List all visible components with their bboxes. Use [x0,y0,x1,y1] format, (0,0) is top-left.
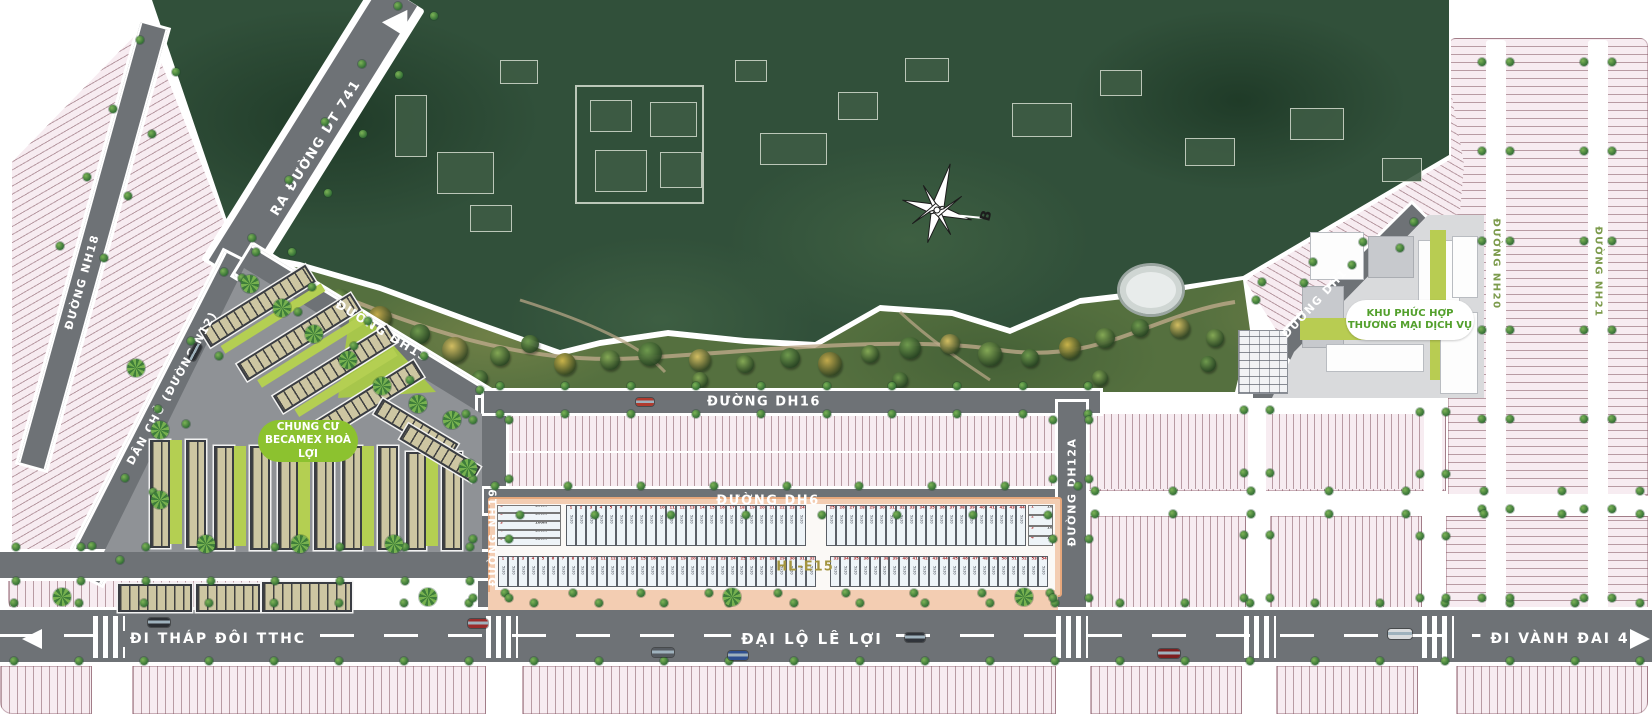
tree-icon [1608,58,1616,66]
lot-dims: 5x20 [579,515,582,524]
lot: 345x20 [840,556,850,587]
lot: 155x20 [706,505,716,546]
lot-strip-bottom-6 [1456,666,1648,714]
lot: 205x20 [687,556,697,587]
tree-icon [505,535,513,543]
lawn-strip [234,446,246,546]
lot-number: 2 [579,506,582,510]
lawn-strip [362,446,374,546]
park-tree-icon [861,345,879,363]
lot: 135x20 [686,505,696,546]
palm-tree-icon [419,588,437,606]
lot-number: 44 [1019,506,1022,510]
lot: 85x20 [636,505,646,546]
lot-number: 34 [843,557,846,561]
lot-dims: 5x20 [629,515,632,524]
lot-number: 2 [511,557,514,561]
lot-number: 27 [849,506,852,510]
lot-number: 21 [700,557,703,561]
lot: 445x20 [1016,505,1026,546]
lot-area-right-lower-1 [1090,516,1246,610]
lot-number: 8 [571,557,574,561]
tree-icon [910,589,918,597]
lot: 145x20 [696,505,706,546]
tree-icon [420,352,428,360]
lot: 65x20 [548,556,558,587]
lot-number: 29 [869,506,872,510]
lot-number: 38 [883,557,886,561]
forest-building [500,60,538,84]
tree-icon [215,352,223,360]
lot-row-upper-left: 15x2025x2035x2045x2055x2065x2075x2085x20… [566,505,806,546]
lot-number: 5 [541,557,544,561]
lot-number: 43 [933,557,936,561]
lot-dims: 5x20 [551,566,554,575]
lot: 245x20 [727,556,737,587]
road-residential-south [0,552,492,578]
rowhouse-building [406,452,426,550]
road-label-nh21: ĐƯỜNG NH21 [1593,226,1604,317]
crosswalk [1422,616,1454,658]
lot-number: 27 [760,557,763,561]
lot-number: 33 [833,557,836,561]
tree-icon [359,130,367,138]
lot-dims: 5x20 [829,515,832,524]
lot-number: 43 [1009,506,1012,510]
tree-icon [136,36,144,44]
lot: 525x20 [1018,556,1028,587]
tree-icon [1442,408,1450,416]
lot-number: 53 [1032,557,1035,561]
tree-icon [12,577,20,585]
tree-icon [1636,657,1644,665]
tree-icon [1091,487,1099,495]
lot-number: 22 [710,557,713,561]
tree-icon [1240,531,1248,539]
road-label-nh19: ĐƯỜNG NH19 [487,488,500,587]
lot: 175x20 [726,505,736,546]
lot-dims: 5x20 [690,566,693,575]
lot: 75x20 [558,556,568,587]
arrow-right-icon [1630,629,1650,649]
lot-number: 25 [829,506,832,510]
forest-building [905,58,949,82]
tree-icon [400,657,408,665]
tree-icon [667,511,675,519]
lot: 55x20 [606,505,616,546]
lot-dims: 5x20 [639,515,642,524]
lot: 125x20 [607,556,617,587]
forest-building [1382,158,1422,182]
lot-dims: 5x20 [609,515,612,524]
tree-icon [1240,469,1248,477]
lot-dims: 5x20 [992,566,995,575]
lot-dims: 5x20 [501,566,504,575]
forest-building [590,100,632,132]
tree-icon [75,657,83,665]
tree-icon [205,657,213,665]
tree-icon [1478,58,1486,66]
tree-icon [140,657,148,665]
tree-icon [1325,510,1333,518]
block-label: HL-E15 [776,560,834,575]
lot-dims: 5x20 [952,566,955,575]
lawn-strip [426,452,438,546]
lot-number: 32 [899,506,902,510]
park-tree-icon [1206,329,1224,347]
lot-number: 26 [750,557,753,561]
lot: 545x20 [1038,556,1048,587]
block-table-row: 3100m² [497,521,561,529]
tree-icon [1580,58,1588,66]
lot-strip-bottom-3 [522,666,1056,714]
tree-icon [1311,657,1319,665]
lot-dims: 5x20 [959,515,962,524]
lot-dims: 5x20 [621,566,624,575]
lot-number: 37 [949,506,952,510]
tree-icon [1051,657,1059,665]
tree-icon [783,482,791,490]
park-tree-icon [600,350,620,370]
tree-icon [516,511,524,519]
lot-dims: 5x20 [630,566,633,575]
tree-icon [1608,326,1616,334]
lot-dims: 5x20 [511,566,514,575]
tree-icon [1019,410,1027,418]
lot-dims: 5x20 [1019,515,1022,524]
lot-dims: 5x20 [779,515,782,524]
park-tree-icon [736,355,754,373]
lot: 105x20 [587,556,597,587]
lot-dims: 5x20 [942,566,945,575]
lot-dims: 5x20 [1031,566,1034,575]
lot-number: 11 [669,506,672,510]
tree-icon [1266,594,1274,602]
lot-number: 13 [621,557,624,561]
lot: 25x20 [576,505,586,546]
lot-number: 4 [531,557,534,561]
lot-dims: 5x20 [1012,566,1015,575]
lot-dims: 5x20 [521,566,524,575]
tree-icon [986,599,994,607]
lot-number: 33 [909,506,912,510]
complex-building [1452,236,1478,298]
lot: 185x20 [667,556,677,587]
tree-icon [154,405,162,413]
lot-dims: 5x20 [849,515,852,524]
lot-dims: 5x20 [879,515,882,524]
lot-dims: 5x20 [591,566,594,575]
lot-number: 3 [589,506,592,510]
lot: 285x20 [856,505,866,546]
park-tree-icon [1095,328,1115,348]
lot-number: 34 [919,506,922,510]
highrise-tower [1238,330,1288,394]
palm-tree-icon [723,588,741,606]
park-tree-icon [1200,356,1216,372]
palm-tree-icon [151,421,169,439]
tree-icon [1300,279,1308,287]
lot-strip-bottom-4 [1090,666,1242,714]
tree-icon [350,342,358,350]
lot: 485x20 [979,556,989,587]
tree-icon [1116,657,1124,665]
forest-building [838,92,878,120]
tree-icon [1049,416,1057,424]
tree-icon [395,71,403,79]
lot-dims: 5x20 [972,566,975,575]
tree-icon [888,410,896,418]
lot-dims: 5x20 [893,566,896,575]
lot-dims: 5x20 [619,515,622,524]
lot-number: 40 [979,506,982,510]
tree-icon [1416,594,1424,602]
lot-dims: 5x20 [1002,566,1005,575]
lot-dims: 5x20 [650,566,653,575]
lot-dims: 5x20 [883,566,886,575]
badge-khu-phuc-hop: KHU PHỨC HỢP THƯƠNG MẠI DỊCH VỤ [1346,300,1474,340]
road-label-nh20: ĐƯỜNG NH20 [1491,218,1502,309]
lot-number: 38 [959,506,962,510]
lot-dims: 5x20 [979,515,982,524]
tree-icon [142,543,150,551]
lot-dims: 5x20 [873,566,876,575]
lot-number: 3 [521,557,524,561]
lot-number: 54 [1041,557,1044,561]
lot-number: 25 [740,557,743,561]
lot-number: 8 [639,506,642,510]
tree-icon [1442,470,1450,478]
lot-number: 42 [999,506,1002,510]
tree-icon [969,511,977,519]
lot-number: 37 [873,557,876,561]
lot: 365x20 [936,505,946,546]
palm-tree-icon [305,325,323,343]
lot-dims: 5x20 [640,566,643,575]
tree-icon [1085,594,1093,602]
tree-icon [1019,382,1027,390]
lot-dims: 5x20 [853,566,856,575]
lot-number: 49 [992,557,995,561]
tree-icon [1506,657,1514,665]
lot-dims: 5x20 [982,566,985,575]
lot: 295x20 [866,505,876,546]
lot-number: 7 [629,506,632,510]
lot: 355x20 [850,556,860,587]
park-tree-icon [689,349,711,371]
tree-icon [1266,469,1274,477]
tree-icon [1410,218,1418,226]
lot: 35x20 [518,556,528,587]
lot-strip-bottom-5 [1276,666,1418,714]
lot: 165x20 [647,556,657,587]
tree-icon [1085,535,1093,543]
road-label-dh6: ĐƯỜNG DH6 [716,494,819,509]
palm-tree-icon [409,395,427,413]
lot-number: 15 [641,557,644,561]
lot-dims: 5x20 [839,515,842,524]
lot: 415x20 [909,556,919,587]
lot-number: 35 [929,506,932,510]
tree-icon [1085,416,1093,424]
park-tree-icon [978,342,1002,366]
lot-dims: 5x20 [611,566,614,575]
park-tree-icon [818,352,842,376]
park-tree-icon [638,342,662,366]
lot-dims: 5x20 [903,566,906,575]
palm-tree-icon [127,359,145,377]
tree-icon [710,482,718,490]
lot-dims: 5x20 [859,515,862,524]
lot: 355x20 [926,505,936,546]
lot: 465x20 [959,556,969,587]
tree-icon [430,12,438,20]
tree-icon [1169,510,1177,518]
tree-icon [172,68,180,76]
lot-dims: 5x20 [699,515,702,524]
lot-number: 14 [699,506,702,510]
lot-dims: 5x20 [919,515,922,524]
lot: 495x20 [989,556,999,587]
lot: 55x20 [538,556,548,587]
crosswalk [1244,616,1276,658]
park-tree-icon [1170,318,1190,338]
lot: 15x20 [566,505,576,546]
tree-icon [406,376,414,384]
lot-dims: 5x20 [659,515,662,524]
tree-icon [790,657,798,665]
lot-number: 17 [660,557,663,561]
lot-dims: 5x20 [912,566,915,575]
tree-icon [1442,532,1450,540]
tree-icon [842,589,850,597]
rowhouse-building [262,582,352,612]
park-tree-icon [1059,337,1081,359]
lot: 425x20 [996,505,1006,546]
lot-dims: 5x20 [863,566,866,575]
lot: 475x20 [969,556,979,587]
lot: 365x20 [860,556,870,587]
lot-dims: 5x20 [770,566,773,575]
tree-icon [1246,657,1254,665]
lot-number: 52 [1022,557,1025,561]
palm-tree-icon [197,535,215,553]
tree-icon [1240,406,1248,414]
lot-dims: 5x20 [660,566,663,575]
lot-number: 9 [649,506,652,510]
tree-icon [627,382,635,390]
lot-number: 7 [561,557,564,561]
tree-icon [285,176,293,184]
block-table-row: 2100m² [497,513,561,521]
direction-label-tthc: ĐI THÁP ĐÔI TTHC [120,631,316,647]
lot-dims: 5x20 [679,515,682,524]
lot: 425x20 [919,556,929,587]
park-tree-icon [1021,349,1039,367]
tree-icon [56,242,64,250]
tree-icon [1325,487,1333,495]
badge-khu-line2: THƯƠNG MẠI DỊCH VỤ [1348,320,1472,333]
tree-icon [358,60,366,68]
lot-dims: 5x20 [571,566,574,575]
crosswalk [1056,616,1088,658]
tree-icon [1084,382,1092,390]
lot: 255x20 [826,505,836,546]
lot: 215x20 [697,556,707,587]
tree-icon [1571,657,1579,665]
tree-icon [469,416,477,424]
park-tree-icon [940,334,960,354]
lot-dims: 5x20 [601,566,604,575]
tree-icon [530,657,538,665]
tree-icon [182,420,190,428]
lot-number: 44 [942,557,945,561]
car-icon [652,648,674,657]
tree-icon [1311,599,1319,607]
lot-number: 6 [551,557,554,561]
road-label-dh12a: ĐƯỜNG DH12A [1066,438,1079,547]
rowhouse-building [342,446,362,550]
lot: 255x20 [737,556,747,587]
lot: 125x20 [676,505,686,546]
lot-dims: 5x20 [599,515,602,524]
palm-tree-icon [273,299,291,317]
le-loi-text: ĐẠI LỘ LÊ LỢI [741,630,883,648]
lot-dims: 5x20 [709,515,712,524]
tree-icon [627,410,635,418]
lot-number: 41 [913,557,916,561]
tree-icon [1580,326,1588,334]
lot: 95x20 [646,505,656,546]
park-tree-icon [1131,319,1149,337]
tree-icon [823,382,831,390]
lot-number: 42 [923,557,926,561]
tree-icon [505,594,513,602]
tree-icon [77,543,85,551]
forest-building [735,60,767,82]
lot-dims: 5x20 [869,515,872,524]
tree-icon [10,599,18,607]
tree-icon [220,268,228,276]
rowhouse-building [186,440,206,548]
lot: 375x20 [870,556,880,587]
lot-number: 1 [569,506,572,510]
lot: 225x20 [776,505,786,546]
lot-number: 15 [709,506,712,510]
car-icon [636,398,654,406]
lot: 275x20 [846,505,856,546]
lot-number: 14 [631,557,634,561]
tree-icon [77,577,85,585]
tree-icon [595,657,603,665]
lot-dims: 5x20 [561,566,564,575]
forest-building [1290,108,1344,140]
block-table-row: 1100m² [497,505,561,513]
tree-icon [823,410,831,418]
road-label-dh16: ĐƯỜNG DH16 [707,395,821,410]
tree-icon [564,482,572,490]
lot-dims: 5x20 [581,566,584,575]
lot: 135x20 [617,556,627,587]
lot-number: 39 [893,557,896,561]
badge-chung-cu: CHUNG CƯ BECAMEX HOÀ LỢI [258,420,358,462]
lot-dims: 5x20 [670,566,673,575]
lot: 105x20 [656,505,666,546]
tree-icon [1049,594,1057,602]
tree-icon [856,657,864,665]
direction-tthc-text: ĐI THÁP ĐÔI TTHC [130,631,306,647]
tree-icon [1247,510,1255,518]
